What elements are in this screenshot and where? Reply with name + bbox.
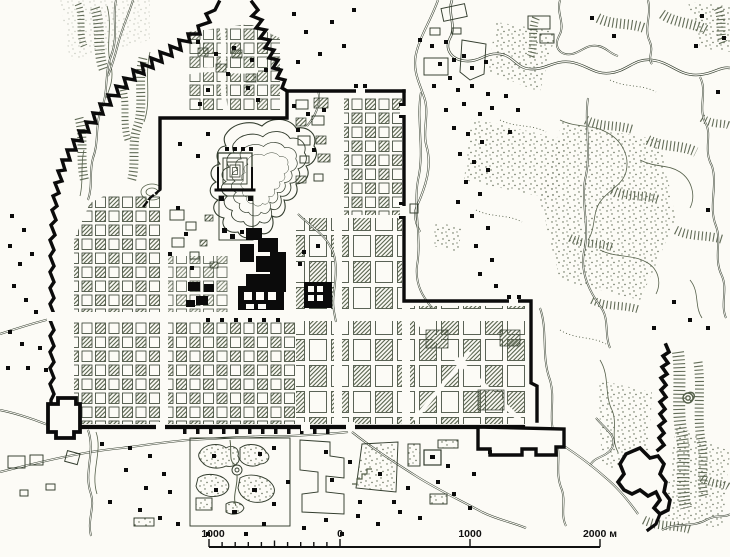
city-plan-map: 1000 0 1000 2000 м [0, 0, 730, 557]
sw-corner-bastion [48, 398, 80, 438]
scale-label-2000m: 2000 м [583, 528, 617, 540]
scale-label-1000-left: 1000 [201, 528, 225, 540]
city-grid-southeast [410, 306, 527, 424]
scale-label-1000-right: 1000 [458, 528, 482, 540]
city-grid-west [74, 196, 160, 424]
scale-label-zero: 0 [337, 528, 343, 540]
